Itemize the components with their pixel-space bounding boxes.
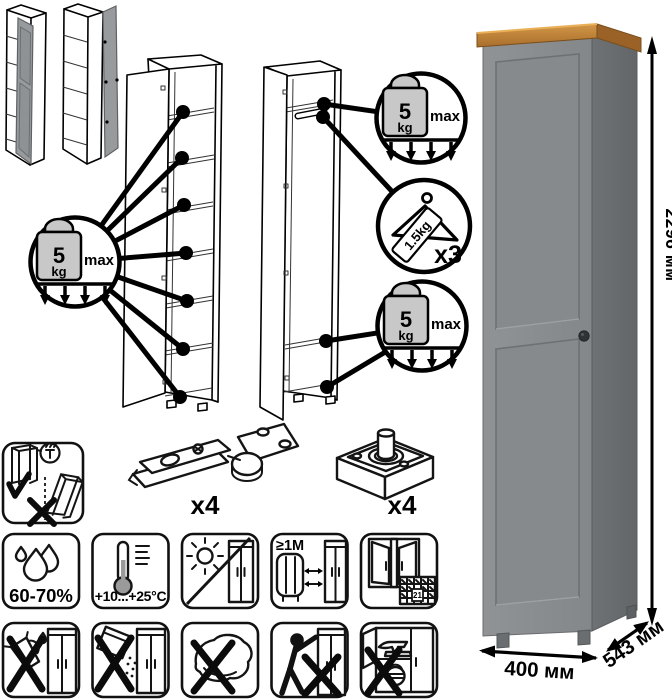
height-label: 2296 мм [662,208,672,281]
door-upper-panel [496,54,579,329]
back-foot [627,605,636,619]
callout-bottom-shelf-load [378,282,467,371]
icon-keep-upright [3,443,84,524]
thumbnail-cabinet-open [63,4,119,164]
shelf-cabinet-drawing [123,55,222,411]
calendar-day: 21 [413,591,422,600]
icon-no-powder [93,623,169,697]
wardrobe-side [592,36,637,631]
icon-temperature: +10...+25°C [93,534,169,608]
door-lower-panel [496,339,579,605]
front-foot [578,630,590,645]
wardrobe-icon [325,541,346,602]
hinge-count: x4 [191,490,220,520]
front-foot [497,633,509,648]
foot-count: x4 [388,490,417,520]
product-render [477,24,641,648]
sheet-canvas: 5 kg max [0,0,672,700]
open-door [260,67,287,420]
humidity-label: 60-70% [9,585,73,606]
icon-no-heavy-items [361,623,437,697]
callout-top-shelf-load [377,74,466,163]
icon-heater-distance: ≥1М [272,534,348,608]
thumbnail-cabinet-closed [6,5,46,165]
rail-count: x3 [434,241,462,269]
icon-no-abrasives [182,623,258,697]
instruction-sheet: 5 kg max [0,0,672,700]
icon-no-sunlight [182,534,258,608]
temperature-label: +10...+25°C [95,588,167,604]
wardrobe-icon [48,629,76,693]
icon-no-leaning [272,623,348,697]
callout-shelf-load-left [31,218,120,307]
icon-no-liquids [3,623,79,697]
width-label: 400 мм [504,657,576,684]
door-knob [579,331,589,341]
calendar-icon: 21 [400,577,435,604]
icon-humidity: 60-70% [3,534,79,608]
wardrobe-icon [229,541,253,602]
wardrobe-icon [137,629,165,693]
heater-icon [277,554,303,601]
distance-label: ≥1М [276,538,304,554]
icon-ventilation: 21 [361,534,437,608]
sun-icon [187,538,223,574]
callout-rail-load: 1.5kg x3 [378,180,470,272]
